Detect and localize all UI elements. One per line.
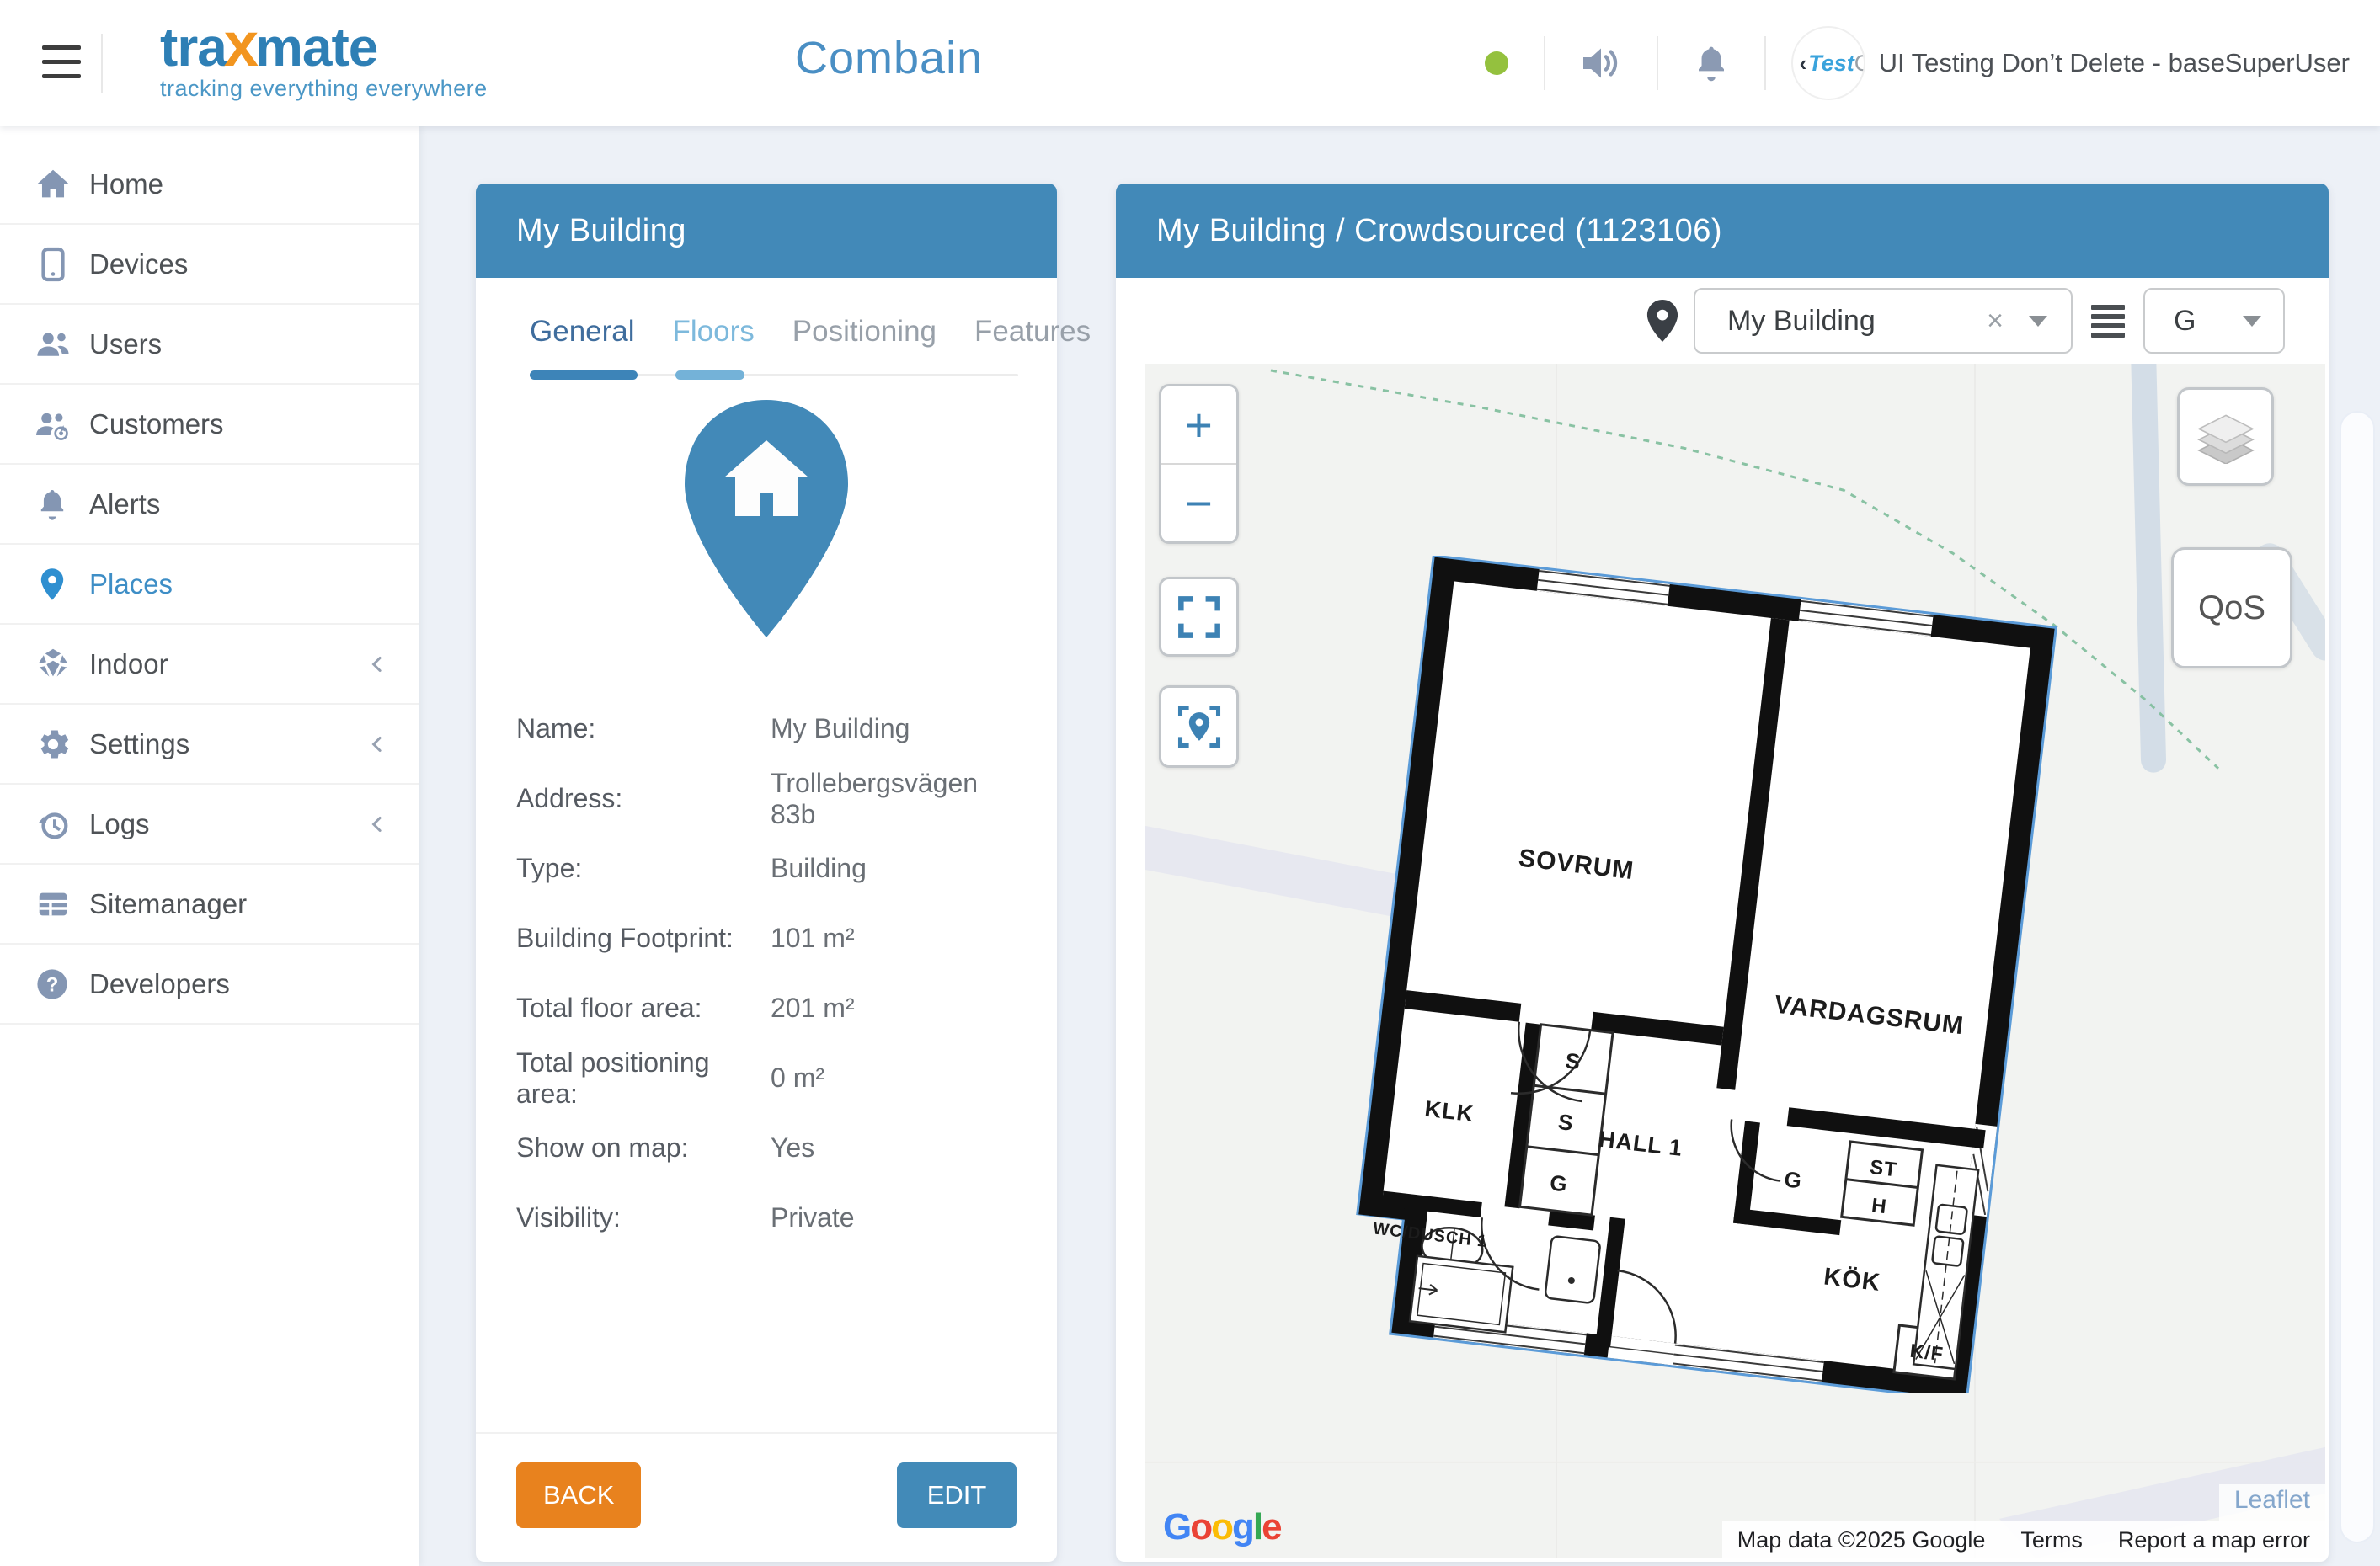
- building-panel-title: My Building: [516, 213, 686, 249]
- sidebar-item-label: Sitemanager: [89, 888, 247, 920]
- edit-button[interactable]: EDIT: [897, 1462, 1017, 1528]
- chevron-left-icon: [365, 812, 390, 837]
- divider: [1657, 36, 1658, 90]
- main-content: My Building General Floors Positioning F…: [419, 126, 2380, 1566]
- sidebar-item-customers[interactable]: Customers: [0, 385, 419, 465]
- sidebar-item-sitemanager[interactable]: Sitemanager: [0, 865, 419, 945]
- map-panel-header: My Building / Crowdsourced (1123106): [1116, 184, 2329, 278]
- detail-label: Type:: [516, 853, 771, 884]
- sidebar-item-label: Settings: [89, 728, 189, 760]
- bell-icon: [34, 486, 81, 523]
- place-select[interactable]: My Building ×: [1694, 288, 2073, 354]
- sidebar-item-label: Indoor: [89, 648, 168, 680]
- logo-mate: mate: [255, 17, 377, 77]
- cell-label-g1: G: [1549, 1169, 1570, 1196]
- map-zoom-control: + −: [1159, 384, 1239, 544]
- clear-selection-icon[interactable]: ×: [1987, 305, 2004, 338]
- sidebar-item-label: Customers: [89, 408, 224, 440]
- detail-value: 101 m²: [771, 923, 855, 954]
- place-pin-icon: [1646, 300, 1678, 342]
- cell-label-h: H: [1870, 1194, 1888, 1218]
- header-divider: [101, 34, 103, 93]
- sidebar-item-alerts[interactable]: Alerts: [0, 465, 419, 545]
- tab-positioning[interactable]: Positioning: [792, 315, 937, 349]
- detail-value: 0 m²: [771, 1063, 824, 1094]
- detail-value: Yes: [771, 1132, 814, 1164]
- cell-label-kf: K/F: [1909, 1340, 1945, 1365]
- detail-value: My Building: [771, 713, 910, 744]
- user-account-label[interactable]: UI Testing Don’t Delete - baseSuperUser: [1879, 48, 2350, 78]
- map-data-attribution: Map data ©2025 Google: [1737, 1527, 1986, 1553]
- users-icon: [34, 325, 81, 364]
- detail-label: Show on map:: [516, 1132, 771, 1164]
- logo-x: x: [224, 9, 258, 79]
- gear-icon: [34, 725, 81, 764]
- sidebar-item-logs[interactable]: Logs: [0, 785, 419, 865]
- indoor-globe-icon: [34, 645, 81, 684]
- floor-select[interactable]: G: [2143, 288, 2285, 354]
- detail-row: Total floor area:201 m²: [516, 973, 1017, 1043]
- sidebar-item-devices[interactable]: Devices: [0, 225, 419, 305]
- chevron-left-icon: [365, 732, 390, 757]
- sidebar-item-settings[interactable]: Settings: [0, 705, 419, 785]
- floor-select-value: G: [2174, 305, 2243, 338]
- detail-row: Type:Building: [516, 834, 1017, 903]
- notifications-bell-icon[interactable]: [1690, 42, 1732, 84]
- tab-underline-track: [530, 374, 1018, 376]
- detail-row: Total positioning area:0 m²: [516, 1043, 1017, 1113]
- cell-label-g2: G: [1783, 1166, 1804, 1193]
- detail-label: Address:: [516, 783, 771, 814]
- home-icon: [34, 165, 81, 204]
- detail-label: Name:: [516, 713, 771, 744]
- cell-label-st: ST: [1869, 1156, 1899, 1182]
- layers-button[interactable]: [2177, 387, 2274, 486]
- detail-label: Total floor area:: [516, 993, 771, 1024]
- building-panel-header: My Building: [476, 184, 1057, 278]
- avatar-text-secondary: Ca: [1854, 51, 1865, 77]
- map-panel: My Building / Crowdsourced (1123106) My …: [1116, 184, 2329, 1562]
- building-tabs: General Floors Positioning Features: [530, 315, 1018, 376]
- history-icon: [34, 805, 81, 844]
- divider: [1764, 36, 1766, 90]
- chevron-left-icon: [365, 652, 390, 677]
- detail-value: Trollebergsvägen 83b: [771, 768, 1017, 830]
- cell-label-s1: S: [1564, 1047, 1582, 1074]
- cell-label-s2: S: [1557, 1109, 1576, 1136]
- customers-icon: [34, 405, 81, 444]
- sidebar-item-indoor[interactable]: Indoor: [0, 625, 419, 705]
- zoom-out-button[interactable]: −: [1161, 465, 1236, 541]
- detail-value: Private: [771, 1202, 855, 1233]
- sidebar-item-label: Alerts: [89, 488, 160, 520]
- chevron-down-icon: [2029, 316, 2047, 327]
- svg-text:?: ?: [46, 973, 59, 996]
- fullscreen-button[interactable]: [1159, 577, 1239, 657]
- report-map-error-link[interactable]: Report a map error: [2118, 1527, 2310, 1553]
- map-panel-title: My Building / Crowdsourced (1123106): [1156, 213, 1722, 249]
- back-button[interactable]: BACK: [516, 1462, 641, 1528]
- header-right-cluster: ‹TestCa UI Testing Don’t Delete - baseSu…: [1485, 0, 2350, 126]
- tab-floors[interactable]: Floors: [673, 315, 755, 349]
- sidebar-item-label: Logs: [89, 808, 150, 840]
- device-icon: [34, 245, 81, 284]
- detail-label: Building Footprint:: [516, 923, 771, 954]
- page-title: Combain: [795, 32, 983, 84]
- qos-button[interactable]: QoS: [2171, 547, 2292, 668]
- logo-tagline: tracking everything everywhere: [160, 77, 488, 100]
- avatar-text-primary: Test: [1808, 51, 1854, 77]
- sidebar-item-users[interactable]: Users: [0, 305, 419, 385]
- floor-list-icon[interactable]: [2091, 305, 2125, 338]
- map-pin-icon: [34, 566, 81, 603]
- building-details-list: Name:My Building Address:Trollebergsväge…: [516, 694, 1017, 1432]
- google-logo: Google: [1163, 1506, 1281, 1548]
- question-circle-icon: ?: [34, 966, 81, 1003]
- sidebar-item-label: Places: [89, 568, 173, 600]
- tab-features[interactable]: Features: [974, 315, 1091, 349]
- place-select-value: My Building: [1727, 305, 1987, 338]
- online-status-dot: [1485, 51, 1508, 75]
- sidebar-item-developers[interactable]: ? Developers: [0, 945, 419, 1025]
- sidebar-item-label: Home: [89, 168, 163, 200]
- table-icon: [34, 885, 81, 924]
- sidebar-nav: Home Devices Users Customers Alerts Plac…: [0, 126, 419, 1566]
- detail-row: Show on map:Yes: [516, 1113, 1017, 1183]
- detail-value: 201 m²: [771, 993, 855, 1024]
- user-avatar[interactable]: ‹TestCa: [1791, 26, 1865, 100]
- sidebar-item-label: Users: [89, 328, 162, 360]
- detail-row: Visibility:Private: [516, 1183, 1017, 1253]
- map-toolbar: My Building × G: [1116, 278, 2329, 364]
- building-panel-footer: BACK EDIT: [476, 1432, 1057, 1562]
- sidebar-item-home[interactable]: Home: [0, 145, 419, 225]
- sidebar-item-places[interactable]: Places: [0, 545, 419, 625]
- menu-toggle-icon[interactable]: [42, 45, 81, 78]
- logo-brand: traxmate: [160, 13, 488, 76]
- detail-row: Address:Trollebergsvägen 83b: [516, 764, 1017, 834]
- map-attribution-bar: Map data ©2025 Google Terms Report a map…: [1722, 1521, 2325, 1558]
- sidebar-item-label: Developers: [89, 968, 230, 1000]
- traxmate-logo[interactable]: traxmate tracking everything everywhere: [160, 13, 488, 100]
- tab-general-indicator: [530, 370, 638, 380]
- detail-label: Total positioning area:: [516, 1047, 771, 1110]
- building-marker-graphic: [678, 393, 855, 650]
- detail-label: Visibility:: [516, 1202, 771, 1233]
- avatar-logo-mark: ‹: [1800, 51, 1807, 77]
- tab-general[interactable]: General: [530, 315, 635, 349]
- page-scrollbar[interactable]: [2340, 411, 2375, 1543]
- map-canvas[interactable]: SOVRUM VARDAGSRUM KLK S S G HALL 1 G ST …: [1145, 364, 2325, 1558]
- tab-floors-indicator: [675, 370, 744, 380]
- zoom-in-button[interactable]: +: [1161, 386, 1236, 465]
- detail-row: Name:My Building: [516, 694, 1017, 764]
- leaflet-attribution-link[interactable]: Leaflet: [2219, 1484, 2325, 1521]
- top-header: traxmate tracking everything everywhere …: [0, 0, 2380, 126]
- building-details-panel: My Building General Floors Positioning F…: [476, 184, 1057, 1562]
- chevron-down-icon: [2243, 316, 2261, 327]
- logo-tra: tra: [160, 17, 227, 77]
- terms-link[interactable]: Terms: [2020, 1527, 2083, 1553]
- sound-icon[interactable]: [1577, 40, 1625, 87]
- detail-row: Building Footprint:101 m²: [516, 903, 1017, 973]
- divider: [1544, 36, 1545, 90]
- detail-value: Building: [771, 853, 867, 884]
- sidebar-item-label: Devices: [89, 248, 188, 280]
- floorplan-image[interactable]: SOVRUM VARDAGSRUM KLK S S G HALL 1 G ST …: [1343, 556, 2059, 1393]
- locate-marker-button[interactable]: [1159, 685, 1239, 768]
